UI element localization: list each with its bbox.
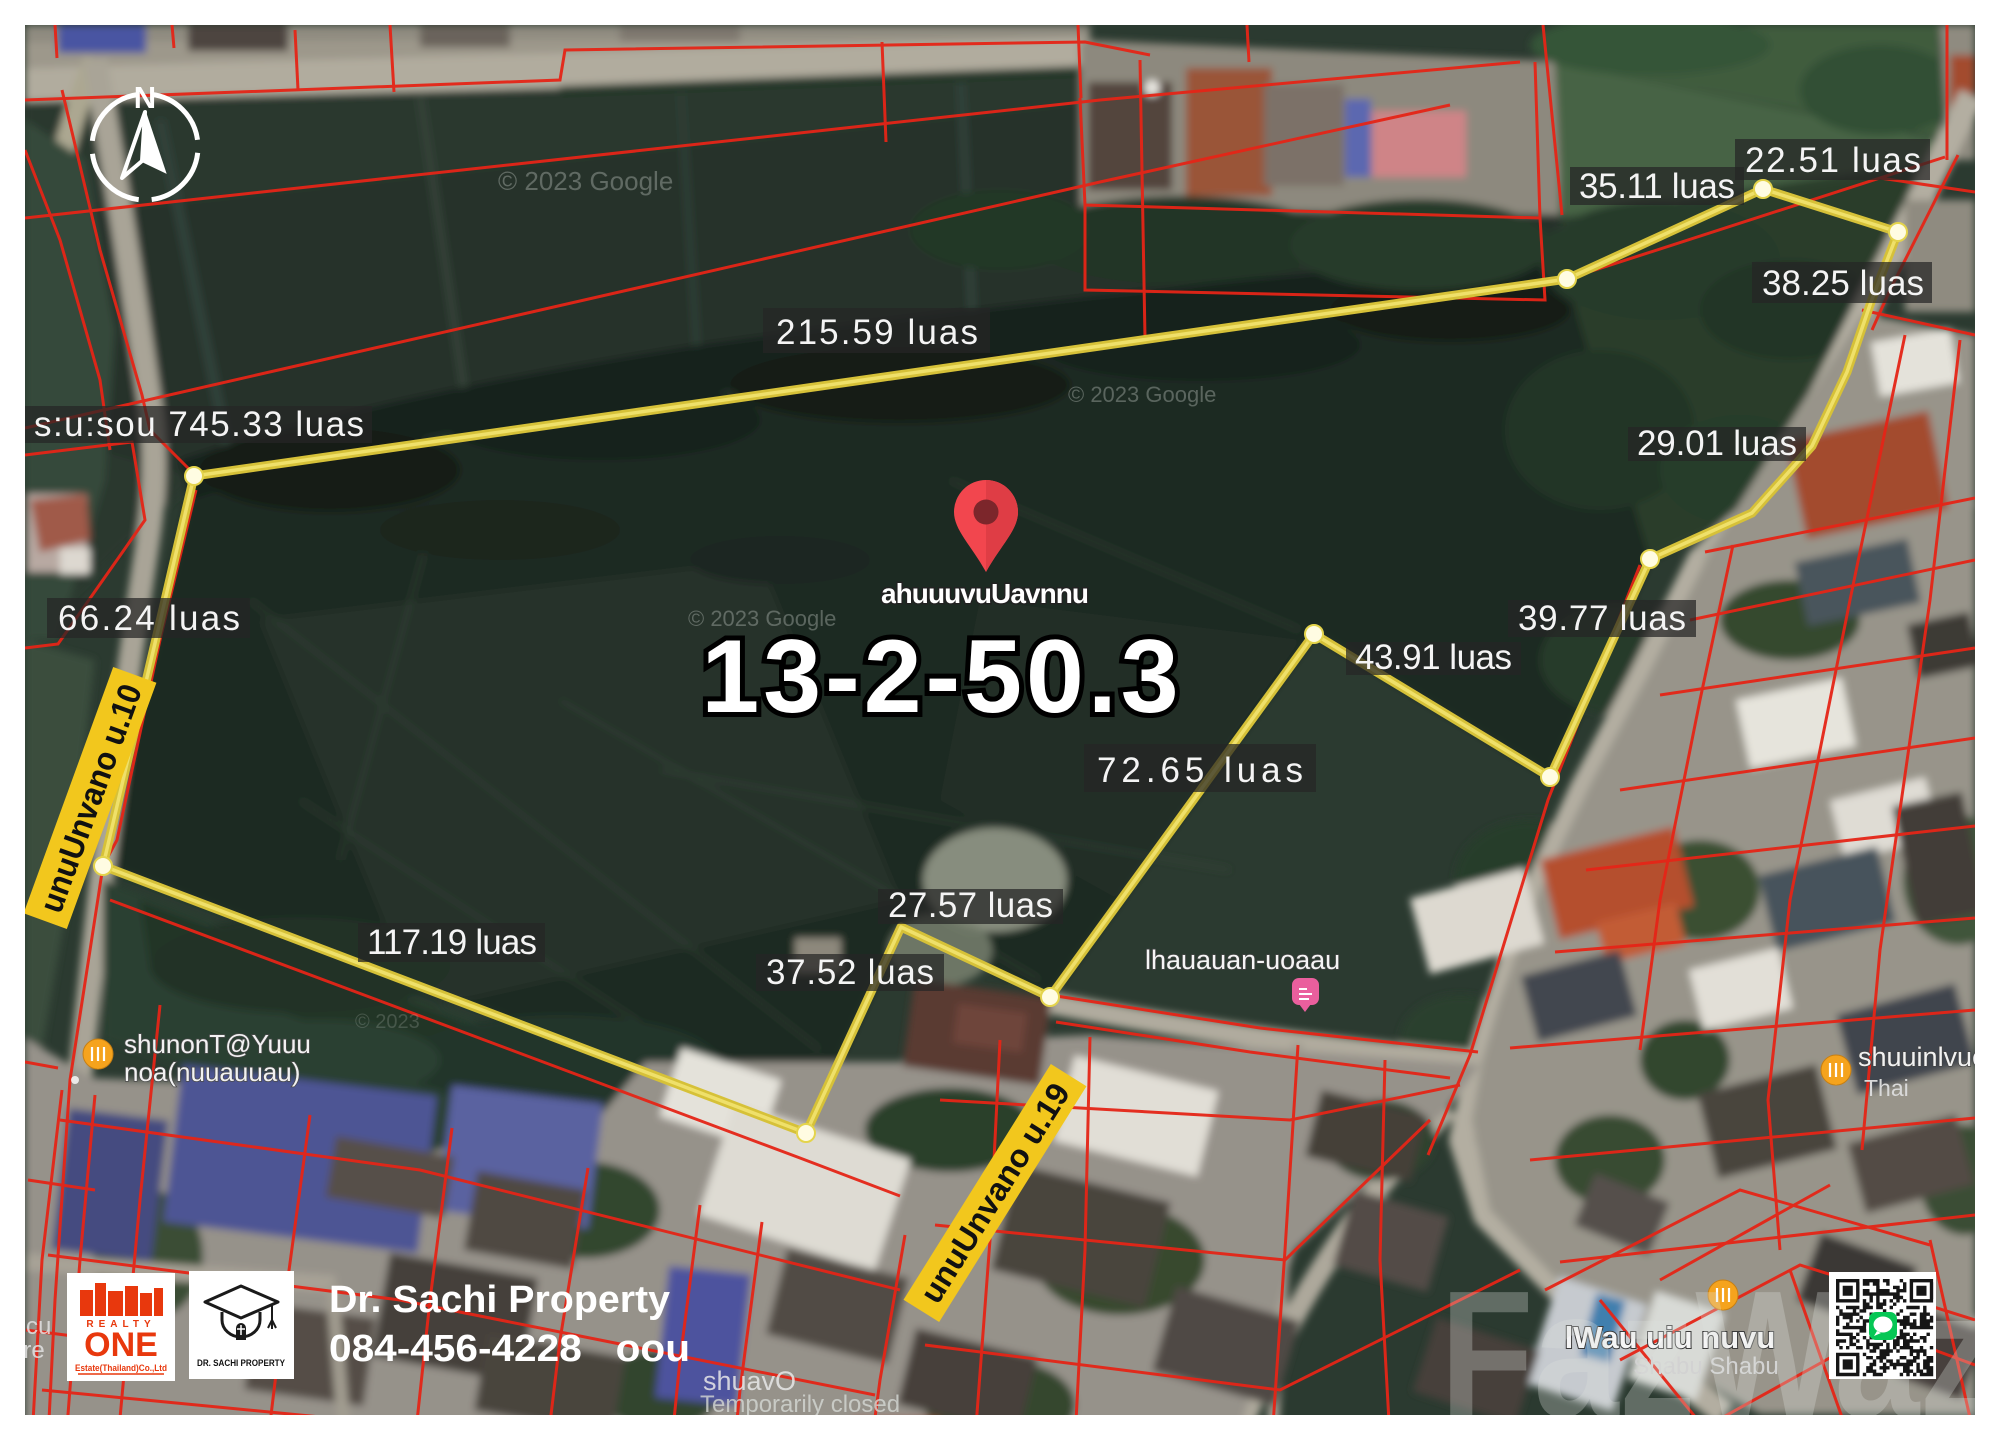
svg-text:Thai: Thai	[1864, 1075, 1909, 1101]
svg-text:lhauauan-uoaau: lhauauan-uoaau	[1145, 945, 1340, 975]
svg-text:© 2023: © 2023	[355, 1011, 420, 1033]
svg-text:117.19 luas: 117.19 luas	[367, 923, 537, 962]
svg-text:© 2023 Google: © 2023 Google	[498, 166, 673, 196]
svg-text:© 2023 Google: © 2023 Google	[1068, 382, 1216, 407]
svg-text:27.57 luas: 27.57 luas	[888, 886, 1053, 925]
svg-text:29.01 luas: 29.01 luas	[1637, 424, 1797, 463]
svg-text:37.52 luas: 37.52 luas	[766, 953, 934, 992]
svg-text:084-456-4228 oou: 084-456-4228 oou	[329, 1328, 690, 1370]
svg-text:ONE: ONE	[84, 1326, 158, 1364]
svg-text:43.91 luas: 43.91 luas	[1355, 638, 1512, 677]
svg-text:N: N	[134, 80, 156, 115]
svg-text:Estate(Thailand)Co.,Ltd: Estate(Thailand)Co.,Ltd	[75, 1363, 167, 1373]
svg-text:ahuuuvuUavnnu: ahuuuvuUavnnu	[881, 578, 1089, 609]
svg-text:shunonT@Yuuu: shunonT@Yuuu	[124, 1029, 311, 1059]
svg-text:Dr. Sachi Property: Dr. Sachi Property	[329, 1279, 670, 1321]
svg-text:13-2-50.3: 13-2-50.3	[701, 619, 1182, 735]
svg-text:Temporarily closed: Temporarily closed	[700, 1391, 900, 1418]
svg-text:72.65 luas: 72.65 luas	[1097, 751, 1303, 790]
svg-text:shuuinlvuo: shuuinlvuo	[1858, 1042, 1987, 1072]
svg-text:39.77 luas: 39.77 luas	[1518, 599, 1686, 638]
svg-text:cu: cu	[26, 1313, 51, 1340]
svg-text:s:u:sou 745.33 luas: s:u:sou 745.33 luas	[34, 405, 364, 444]
svg-text:DR. SACHI PROPERTY: DR. SACHI PROPERTY	[197, 1358, 286, 1369]
svg-text:215.59 luas: 215.59 luas	[776, 313, 978, 352]
svg-text:noa(nuuauuau): noa(nuuauuau)	[124, 1057, 300, 1087]
svg-text:22.51 luas: 22.51 luas	[1745, 141, 1921, 180]
svg-text:35.11 luas: 35.11 luas	[1579, 167, 1735, 206]
svg-text:66.24 luas: 66.24 luas	[58, 599, 240, 638]
svg-text:38.25 luas: 38.25 luas	[1762, 264, 1924, 303]
